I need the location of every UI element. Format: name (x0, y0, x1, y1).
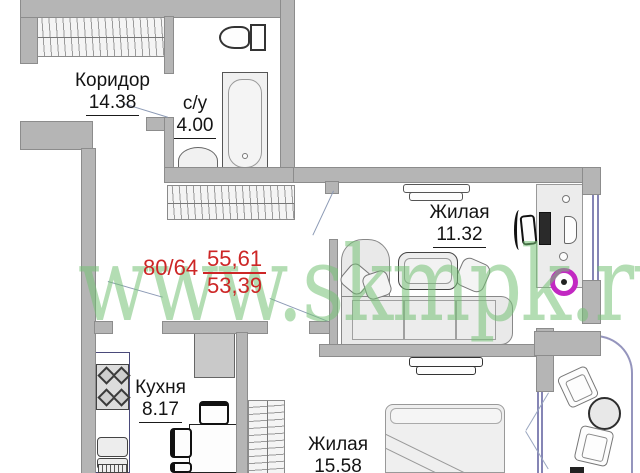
sofa-cushion (404, 300, 456, 340)
room-label-corridor: Коридор 14.38 (60, 70, 165, 116)
wall (281, 0, 294, 170)
room-name: Жилая (293, 434, 383, 456)
bathtub-drain (242, 153, 248, 159)
bed-fold-line (385, 431, 470, 473)
wardrobe-hatch (37, 17, 165, 57)
wardrobe-hatch (248, 400, 285, 473)
sofa-cushion (352, 300, 404, 340)
tv-panel (416, 366, 476, 375)
dining-chair (199, 401, 229, 425)
room-area: 4.00 (174, 115, 217, 138)
wall (330, 240, 337, 346)
wall (237, 333, 247, 473)
room-name: с/у (160, 93, 230, 115)
wall (535, 332, 600, 355)
room-name: Жилая (412, 202, 507, 224)
room-area: 8.17 (139, 399, 182, 422)
dining-table (189, 424, 237, 473)
tv-shelf (409, 192, 463, 201)
room-name: Коридор (60, 70, 165, 92)
monitor-icon (539, 212, 551, 245)
wall (320, 345, 553, 356)
desk-item (559, 252, 568, 261)
wall (21, 122, 92, 149)
door-swing-line (312, 191, 334, 236)
wall (310, 322, 330, 333)
wall (165, 168, 294, 182)
leader-line (108, 281, 163, 298)
wall (294, 168, 583, 182)
speaker-icon (564, 216, 577, 244)
balcony-table (588, 397, 621, 430)
wall (95, 322, 112, 333)
dining-chair (170, 462, 192, 473)
wardrobe-hatch (167, 185, 295, 220)
wall (82, 149, 95, 473)
wall (163, 322, 267, 333)
wall (21, 0, 294, 17)
leader-line (270, 298, 328, 322)
dining-chair (170, 428, 192, 458)
bed (385, 404, 505, 473)
toilet-tank-icon (250, 24, 266, 51)
desk-item (562, 195, 570, 203)
kitchen-sink-icon (97, 437, 128, 457)
sofa-pillow (453, 255, 493, 295)
balcony-mark (570, 467, 584, 473)
room-area: 14.38 (86, 92, 140, 115)
wall (165, 17, 173, 73)
ratio-value: 80/64 (143, 255, 198, 280)
fridge-icon (194, 333, 235, 378)
living-area: 53,39 (203, 274, 266, 298)
window (592, 194, 599, 281)
room-label-bedroom: Жилая 15.58 (293, 434, 383, 473)
room-area: 11.32 (433, 224, 485, 247)
bed-pillow (390, 408, 502, 424)
area-fraction: 55,61 53,39 (203, 247, 266, 298)
total-area: 55,61 (203, 247, 266, 274)
wall (583, 281, 600, 323)
wall (583, 168, 600, 194)
rooms-ratio: 80/64 (143, 256, 198, 280)
washing-machine-icon (98, 464, 128, 473)
wheel-icon (550, 268, 578, 296)
coffee-table-top (404, 258, 452, 284)
floor-plan: Коридор 14.38 с/у 4.00 Жилая 11.32 Кухня… (0, 0, 640, 473)
desk-chair-seat (519, 214, 537, 245)
sofa-cushion (456, 300, 496, 340)
toilet-icon (219, 26, 250, 49)
room-label-kitchen: Кухня 8.17 (118, 377, 203, 423)
room-label-living: Жилая 11.32 (412, 202, 507, 248)
room-area: 15.58 (311, 456, 365, 473)
room-label-bathroom: с/у 4.00 (160, 93, 230, 139)
room-name: Кухня (118, 377, 203, 399)
